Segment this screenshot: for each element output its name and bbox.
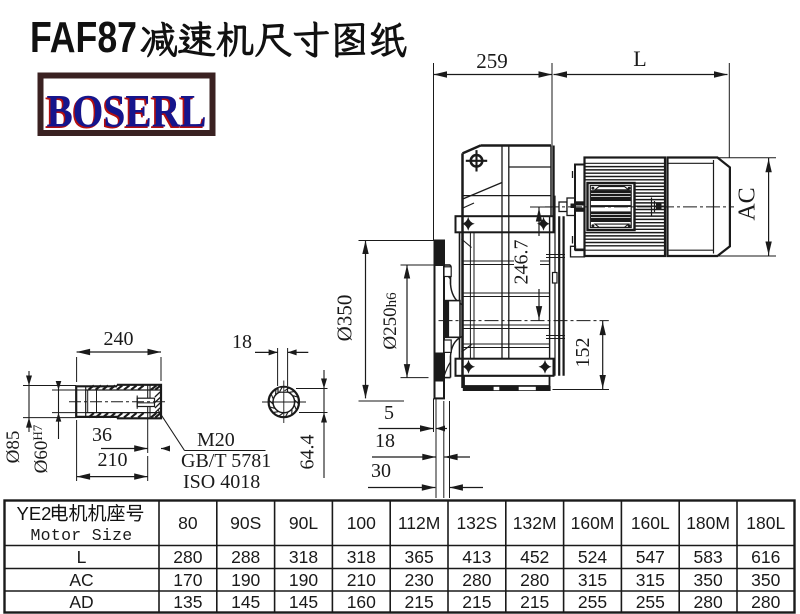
svg-text:280: 280 — [693, 592, 722, 612]
svg-text:210: 210 — [347, 570, 376, 590]
svg-text:132M: 132M — [513, 513, 557, 533]
svg-text:M20: M20 — [197, 429, 235, 451]
svg-text:AC: AC — [69, 570, 93, 590]
svg-text:170: 170 — [173, 570, 202, 590]
svg-text:288: 288 — [231, 547, 260, 567]
svg-text:BOSERL: BOSERL — [47, 86, 207, 138]
svg-text:36: 36 — [92, 424, 112, 446]
svg-text:30: 30 — [371, 460, 391, 482]
svg-text:100: 100 — [347, 513, 376, 533]
svg-text:160M: 160M — [571, 513, 615, 533]
svg-text:280: 280 — [520, 570, 549, 590]
svg-text:L: L — [633, 46, 646, 71]
svg-text:Motor Size: Motor Size — [30, 526, 132, 545]
svg-text:152: 152 — [572, 338, 594, 368]
svg-text:280: 280 — [462, 570, 491, 590]
svg-text:240: 240 — [104, 328, 134, 350]
svg-text:145: 145 — [231, 592, 260, 612]
svg-text:ISO 4018: ISO 4018 — [183, 471, 260, 493]
svg-text:413: 413 — [462, 547, 491, 567]
svg-text:Ø250h6: Ø250h6 — [380, 292, 401, 350]
svg-text:259: 259 — [476, 49, 508, 73]
svg-text:145: 145 — [289, 592, 318, 612]
svg-text:AD: AD — [69, 592, 93, 612]
svg-text:215: 215 — [404, 592, 433, 612]
svg-text:318: 318 — [347, 547, 376, 567]
svg-text:315: 315 — [578, 570, 607, 590]
svg-text:547: 547 — [636, 547, 665, 567]
svg-text:Ø85: Ø85 — [3, 431, 24, 464]
svg-text:135: 135 — [173, 592, 202, 612]
svg-text:215: 215 — [520, 592, 549, 612]
svg-text:255: 255 — [578, 592, 607, 612]
svg-text:18: 18 — [375, 430, 395, 452]
svg-text:280: 280 — [173, 547, 202, 567]
svg-text:180L: 180L — [746, 513, 785, 533]
svg-text:160L: 160L — [631, 513, 670, 533]
svg-text:280: 280 — [751, 592, 780, 612]
svg-text:GB/T 5781: GB/T 5781 — [181, 450, 271, 472]
svg-text:365: 365 — [404, 547, 433, 567]
svg-text:Ø350: Ø350 — [333, 295, 357, 342]
svg-text:230: 230 — [404, 570, 433, 590]
svg-text:64.4: 64.4 — [297, 435, 319, 470]
svg-text:5: 5 — [384, 402, 394, 424]
svg-text:255: 255 — [636, 592, 665, 612]
svg-text:80: 80 — [178, 513, 198, 533]
svg-text:210: 210 — [98, 449, 128, 471]
svg-text:90S: 90S — [230, 513, 261, 533]
svg-text:583: 583 — [693, 547, 722, 567]
svg-text:FAF87: FAF87 — [30, 13, 137, 62]
svg-text:180M: 180M — [686, 513, 730, 533]
svg-text:452: 452 — [520, 547, 549, 567]
svg-text:YE2: YE2 — [17, 503, 52, 524]
svg-text:350: 350 — [751, 570, 780, 590]
svg-text:132S: 132S — [456, 513, 497, 533]
svg-text:160: 160 — [347, 592, 376, 612]
svg-text:315: 315 — [636, 570, 665, 590]
svg-text:18: 18 — [232, 331, 252, 353]
svg-text:190: 190 — [231, 570, 260, 590]
svg-text:AC: AC — [735, 187, 761, 220]
svg-text:350: 350 — [693, 570, 722, 590]
svg-text:L: L — [77, 547, 87, 567]
svg-text:90L: 90L — [289, 513, 318, 533]
svg-text:246.7: 246.7 — [511, 240, 533, 285]
svg-text:215: 215 — [462, 592, 491, 612]
svg-text:112M: 112M — [398, 513, 440, 533]
svg-text:524: 524 — [578, 547, 607, 567]
svg-text:616: 616 — [751, 547, 780, 567]
svg-text:318: 318 — [289, 547, 318, 567]
svg-text:190: 190 — [289, 570, 318, 590]
